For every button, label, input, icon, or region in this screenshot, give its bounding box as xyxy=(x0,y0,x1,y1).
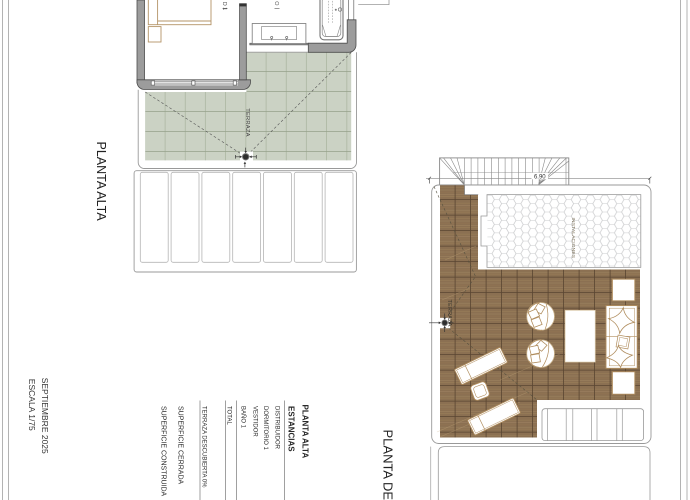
svg-text:PLANTA ALTA: PLANTA ALTA xyxy=(94,142,108,222)
svg-text:O: O xyxy=(273,1,279,6)
svg-text:VESTIDOR: VESTIDOR xyxy=(251,406,257,437)
svg-text:SEPTIEMBRE 2025: SEPTIEMBRE 2025 xyxy=(40,378,50,454)
svg-text:SUPERFICIE CONSTRUIDA: SUPERFICIE CONSTRUIDA xyxy=(159,406,166,497)
svg-text:PLANTA DE CUBIERTAS: PLANTA DE CUBIERTAS xyxy=(381,430,396,500)
svg-text:TOTAL: TOTAL xyxy=(225,406,231,425)
svg-text:6.90: 6.90 xyxy=(534,174,546,180)
svg-text:PLANTA ALTA: PLANTA ALTA xyxy=(301,405,310,459)
svg-text:DISTRIBUIDOR: DISTRIBUIDOR xyxy=(273,406,279,450)
svg-text:TERRAZA: TERRAZA xyxy=(244,108,250,136)
svg-text:TERRAZA DESCUBIERTA 0%: TERRAZA DESCUBIERTA 0% xyxy=(200,406,206,488)
svg-text:D 1: D 1 xyxy=(221,2,227,11)
svg-text:ESCALA 1/75: ESCALA 1/75 xyxy=(27,379,37,431)
svg-text:ESTANCIAS: ESTANCIAS xyxy=(287,406,296,452)
svg-text:INSTALACIONES: INSTALACIONES xyxy=(570,218,576,259)
svg-text:SUPERFICIE CERRADA: SUPERFICIE CERRADA xyxy=(177,406,184,485)
svg-text:TERRAZA: TERRAZA xyxy=(446,300,452,327)
svg-text:DORMITORIO 1: DORMITORIO 1 xyxy=(262,406,268,451)
svg-text:BAÑO 1: BAÑO 1 xyxy=(240,406,247,429)
